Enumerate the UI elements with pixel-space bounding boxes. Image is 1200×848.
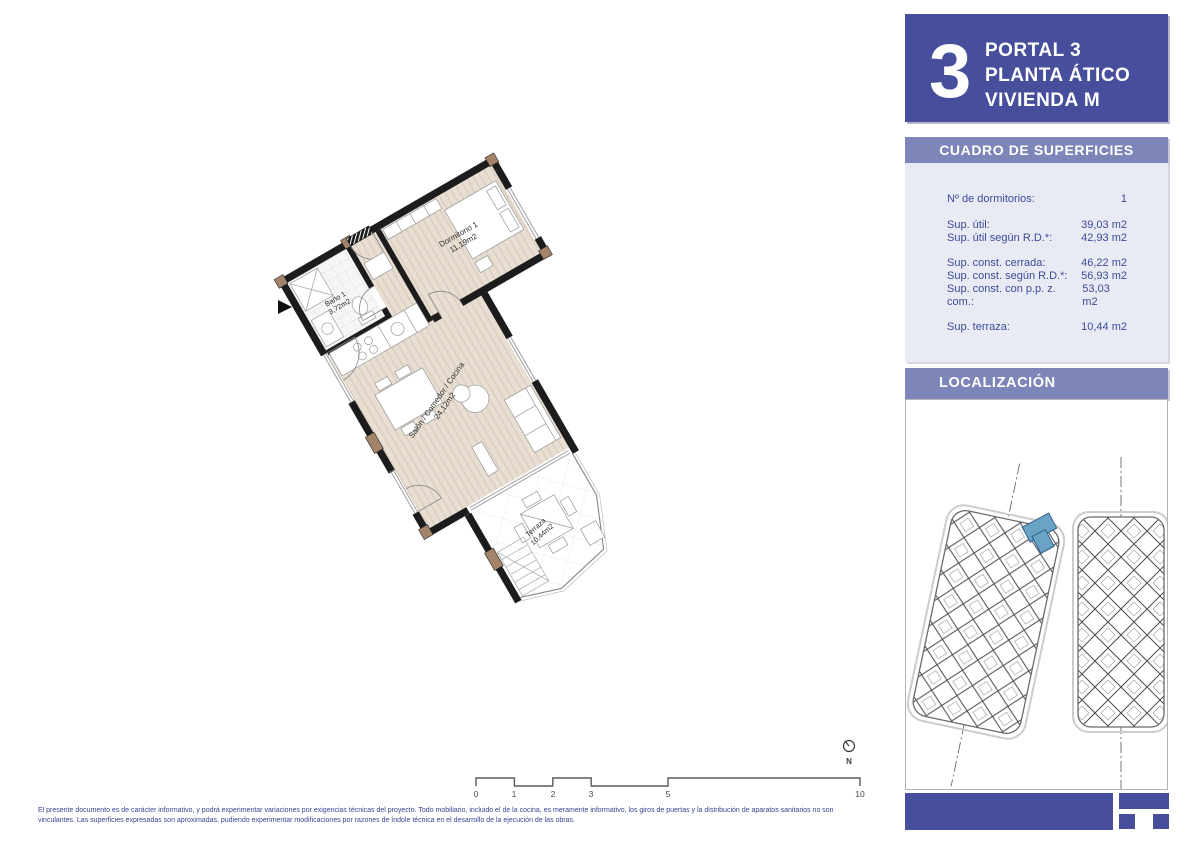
surfaces-table: Nº de dormitorios: 1 Sup. útil: 39,03 m2…	[905, 163, 1168, 362]
floorplan-sheet: Baño 1 3,72m2 Dormitorio 1 11,19m2 Salón…	[0, 0, 1200, 848]
disclaimer-line-1: El presente documento es de carácter inf…	[38, 806, 872, 816]
surfaces-title-bar: CUADRO DE SUPERFICIES	[905, 137, 1168, 163]
scale-label-1: 1	[512, 789, 517, 799]
sup-util-value: 39,03 m2	[1081, 219, 1127, 232]
site-building-left	[906, 451, 1078, 789]
header-unit: VIVIENDA M	[985, 88, 1130, 113]
bedrooms-value: 1	[1121, 193, 1127, 206]
site-building-right	[1073, 457, 1167, 789]
floor-plan-drawing: Baño 1 3,72m2 Dormitorio 1 11,19m2 Salón…	[0, 0, 900, 848]
sup-const-cerrada-label: Sup. const. cerrada:	[947, 257, 1045, 270]
north-label: N	[846, 757, 852, 766]
footer-bar	[905, 793, 1113, 830]
sup-const-cerrada-value: 46,22 m2	[1081, 257, 1127, 270]
table-row: Sup. const. con p.p. z. com.: 53,03 m2	[947, 283, 1127, 309]
sup-util-rd-label: Sup. útil según R.D.*:	[947, 232, 1052, 245]
disclaimer-line-2: vinculantes. Las superficies expresadas …	[38, 816, 872, 826]
portal-number: 3	[929, 22, 971, 122]
sup-const-rd-label: Sup. const. según R.D.*:	[947, 270, 1067, 283]
sup-const-pp-label: Sup. const. con p.p. z. com.:	[947, 283, 1082, 309]
table-row: Sup. útil según R.D.*: 42,93 m2	[947, 232, 1127, 245]
brand-logo-square-left	[1119, 814, 1135, 829]
scale-label-5: 5	[666, 789, 671, 799]
header-floor: PLANTA ÁTICO	[985, 63, 1130, 88]
unit-header: 3 PORTAL 3 PLANTA ÁTICO VIVIENDA M	[905, 14, 1168, 122]
disclaimer: El presente documento es de carácter inf…	[38, 806, 872, 825]
table-row: Sup. útil: 39,03 m2	[947, 219, 1127, 232]
sup-terraza-label: Sup. terraza:	[947, 321, 1010, 334]
brand-logo-bar	[1119, 793, 1169, 809]
localization-title-bar: LOCALIZACIÓN	[905, 368, 1168, 399]
scale-label-0: 0	[474, 789, 479, 799]
scale-label-10: 10	[855, 789, 865, 799]
sup-terraza-value: 10,44 m2	[1081, 321, 1127, 334]
site-plan	[906, 400, 1167, 789]
scale-bar	[476, 778, 860, 786]
localization-box	[905, 399, 1168, 790]
scale-label-3: 3	[589, 789, 594, 799]
sup-util-label: Sup. útil:	[947, 219, 990, 232]
sup-const-pp-value: 53,03 m2	[1082, 283, 1127, 309]
header-portal: PORTAL 3	[985, 38, 1130, 63]
sup-util-rd-value: 42,93 m2	[1081, 232, 1127, 245]
table-row: Nº de dormitorios: 1	[947, 193, 1127, 206]
table-row: Sup. const. cerrada: 46,22 m2	[947, 257, 1127, 270]
table-row: Sup. const. según R.D.*: 56,93 m2	[947, 270, 1127, 283]
scale-label-2: 2	[551, 789, 556, 799]
table-row: Sup. terraza: 10,44 m2	[947, 321, 1127, 334]
sup-const-rd-value: 56,93 m2	[1081, 270, 1127, 283]
bedrooms-label: Nº de dormitorios:	[947, 193, 1035, 206]
brand-logo-square-right	[1153, 814, 1169, 829]
north-indicator: N	[844, 741, 855, 767]
